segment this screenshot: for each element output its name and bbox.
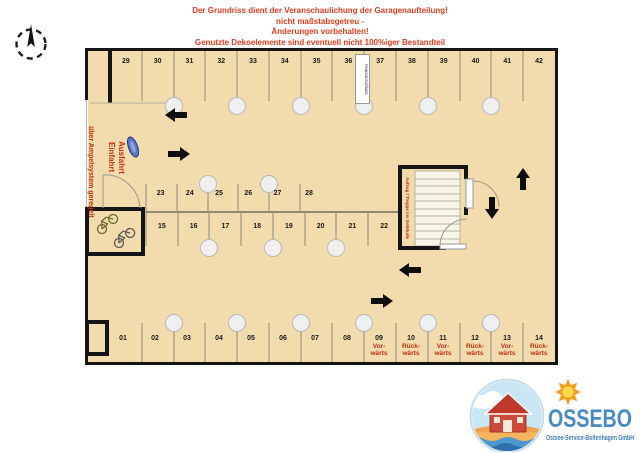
- stall-42: 42: [523, 58, 555, 65]
- parking-row-bottom: 01 02 03 04 05 06 07 08 09 Vor- wärts 10…: [107, 335, 555, 357]
- north-compass-icon: [8, 20, 54, 66]
- label-ausfahrt: Ausfahrt: [116, 121, 126, 193]
- stall-37: 37: [364, 58, 396, 65]
- stall-22: 22: [368, 223, 400, 230]
- label-aufzug-treppe: Aufzug / Treppe ins Gebäude: [400, 166, 410, 250]
- stall-39: 39: [428, 58, 460, 65]
- stall-41: 41: [491, 58, 523, 65]
- parking-row-island-top: 23 24 25 26 27 28: [146, 190, 400, 197]
- stall-24: 24: [175, 190, 204, 197]
- bicycle-icon: [95, 211, 120, 235]
- stall-11: 11 Vor- wärts: [427, 335, 459, 357]
- stall-09: 09 Vor- wärts: [363, 335, 395, 357]
- stall-05: 05: [235, 335, 267, 343]
- company-logo: OSSEBO Ostsee-Service-Boltenhagen GmbH: [462, 376, 634, 452]
- stall-14: 14 Rück- wärts: [523, 335, 555, 357]
- stall-38: 38: [396, 58, 428, 65]
- stall-18: 18: [241, 223, 273, 230]
- bicycle-icon: [112, 225, 137, 249]
- stairwell: [398, 165, 499, 250]
- direction-label: Rück- wärts: [459, 344, 491, 357]
- parking-row-top: 29 30 31 32 33 34 35 36 37 38 39 40 41 4…: [110, 58, 555, 65]
- stall-25: 25: [204, 190, 233, 197]
- door-swing: [473, 181, 499, 207]
- niche-room: [88, 322, 107, 354]
- stall-19: 19: [273, 223, 305, 230]
- stall-26: 26: [234, 190, 263, 197]
- disclaimer-line: Genutzte Dekoelemente sind eventuell nic…: [0, 38, 640, 49]
- logo-brand-text: OSSEBO: [548, 405, 632, 433]
- stall-28: 28: [292, 190, 400, 197]
- label-ampelsystem: über Ampelsystem geregelt: [83, 87, 94, 257]
- floorplan-geometry: [88, 51, 555, 362]
- pillar-columns-island: [200, 176, 345, 257]
- waves: [466, 443, 546, 452]
- door-leaf: [440, 244, 466, 249]
- stall-27: 27: [263, 190, 292, 197]
- stall-30: 30: [142, 58, 174, 65]
- garage-floorplan-page: Der Grundriss dient der Veranschaulichun…: [0, 0, 640, 453]
- stall-23: 23: [146, 190, 175, 197]
- stall-29: 29: [110, 58, 142, 65]
- stall-31: 31: [174, 58, 206, 65]
- stall-02: 02: [139, 335, 171, 343]
- label-einfahrt-ausfahrt: Einfahrt Ausfahrt: [106, 121, 126, 193]
- label-einfahrt: Einfahrt: [106, 121, 116, 193]
- direction-label: Vor- wärts: [363, 344, 395, 357]
- stall-03: 03: [171, 335, 203, 343]
- direction-label: Vor- wärts: [427, 344, 459, 357]
- disclaimer-line: nicht maßstabsgetreu -: [0, 17, 640, 28]
- driving-direction-arrows: [165, 108, 530, 308]
- stall-20: 20: [305, 223, 337, 230]
- stall-17: 17: [210, 223, 242, 230]
- logo-subtitle-text: Ostsee-Service-Boltenhagen GmbH: [546, 435, 634, 442]
- traffic-barrier-icon: [125, 136, 141, 159]
- disclaimer-line: Änderungen vorbehalten!: [0, 27, 640, 38]
- stall-06: 06: [267, 335, 299, 343]
- stall-40: 40: [460, 58, 492, 65]
- stall-35: 35: [301, 58, 333, 65]
- stall-32: 32: [205, 58, 237, 65]
- stall-04: 04: [203, 335, 235, 343]
- stall-13: 13 Vor- wärts: [491, 335, 523, 357]
- stall-12: 12 Rück- wärts: [459, 335, 491, 357]
- stall-33: 33: [237, 58, 269, 65]
- stall-34: 34: [269, 58, 301, 65]
- door-leaf: [466, 179, 473, 208]
- parking-row-island-bottom: 15 16 17 18 19 20 21 22: [146, 223, 400, 230]
- garage-floorplan: über Ampelsystem geregelt Einfahrt Ausfa…: [85, 48, 558, 365]
- stall-07: 07: [299, 335, 331, 343]
- stall-16: 16: [178, 223, 210, 230]
- direction-label: Rück- wärts: [395, 344, 427, 357]
- disclaimer-line: Der Grundriss dient der Veranschaulichun…: [0, 6, 640, 17]
- stall-08: 08: [331, 335, 363, 343]
- direction-label: Rück- wärts: [523, 344, 555, 357]
- sun-icon: [555, 379, 581, 405]
- stall-15: 15: [146, 223, 178, 230]
- direction-label: Vor- wärts: [491, 344, 523, 357]
- stall-36: 36: [332, 58, 364, 65]
- stall-21: 21: [337, 223, 369, 230]
- stall-01: 01: [107, 335, 139, 343]
- stall-10: 10 Rück- wärts: [395, 335, 427, 357]
